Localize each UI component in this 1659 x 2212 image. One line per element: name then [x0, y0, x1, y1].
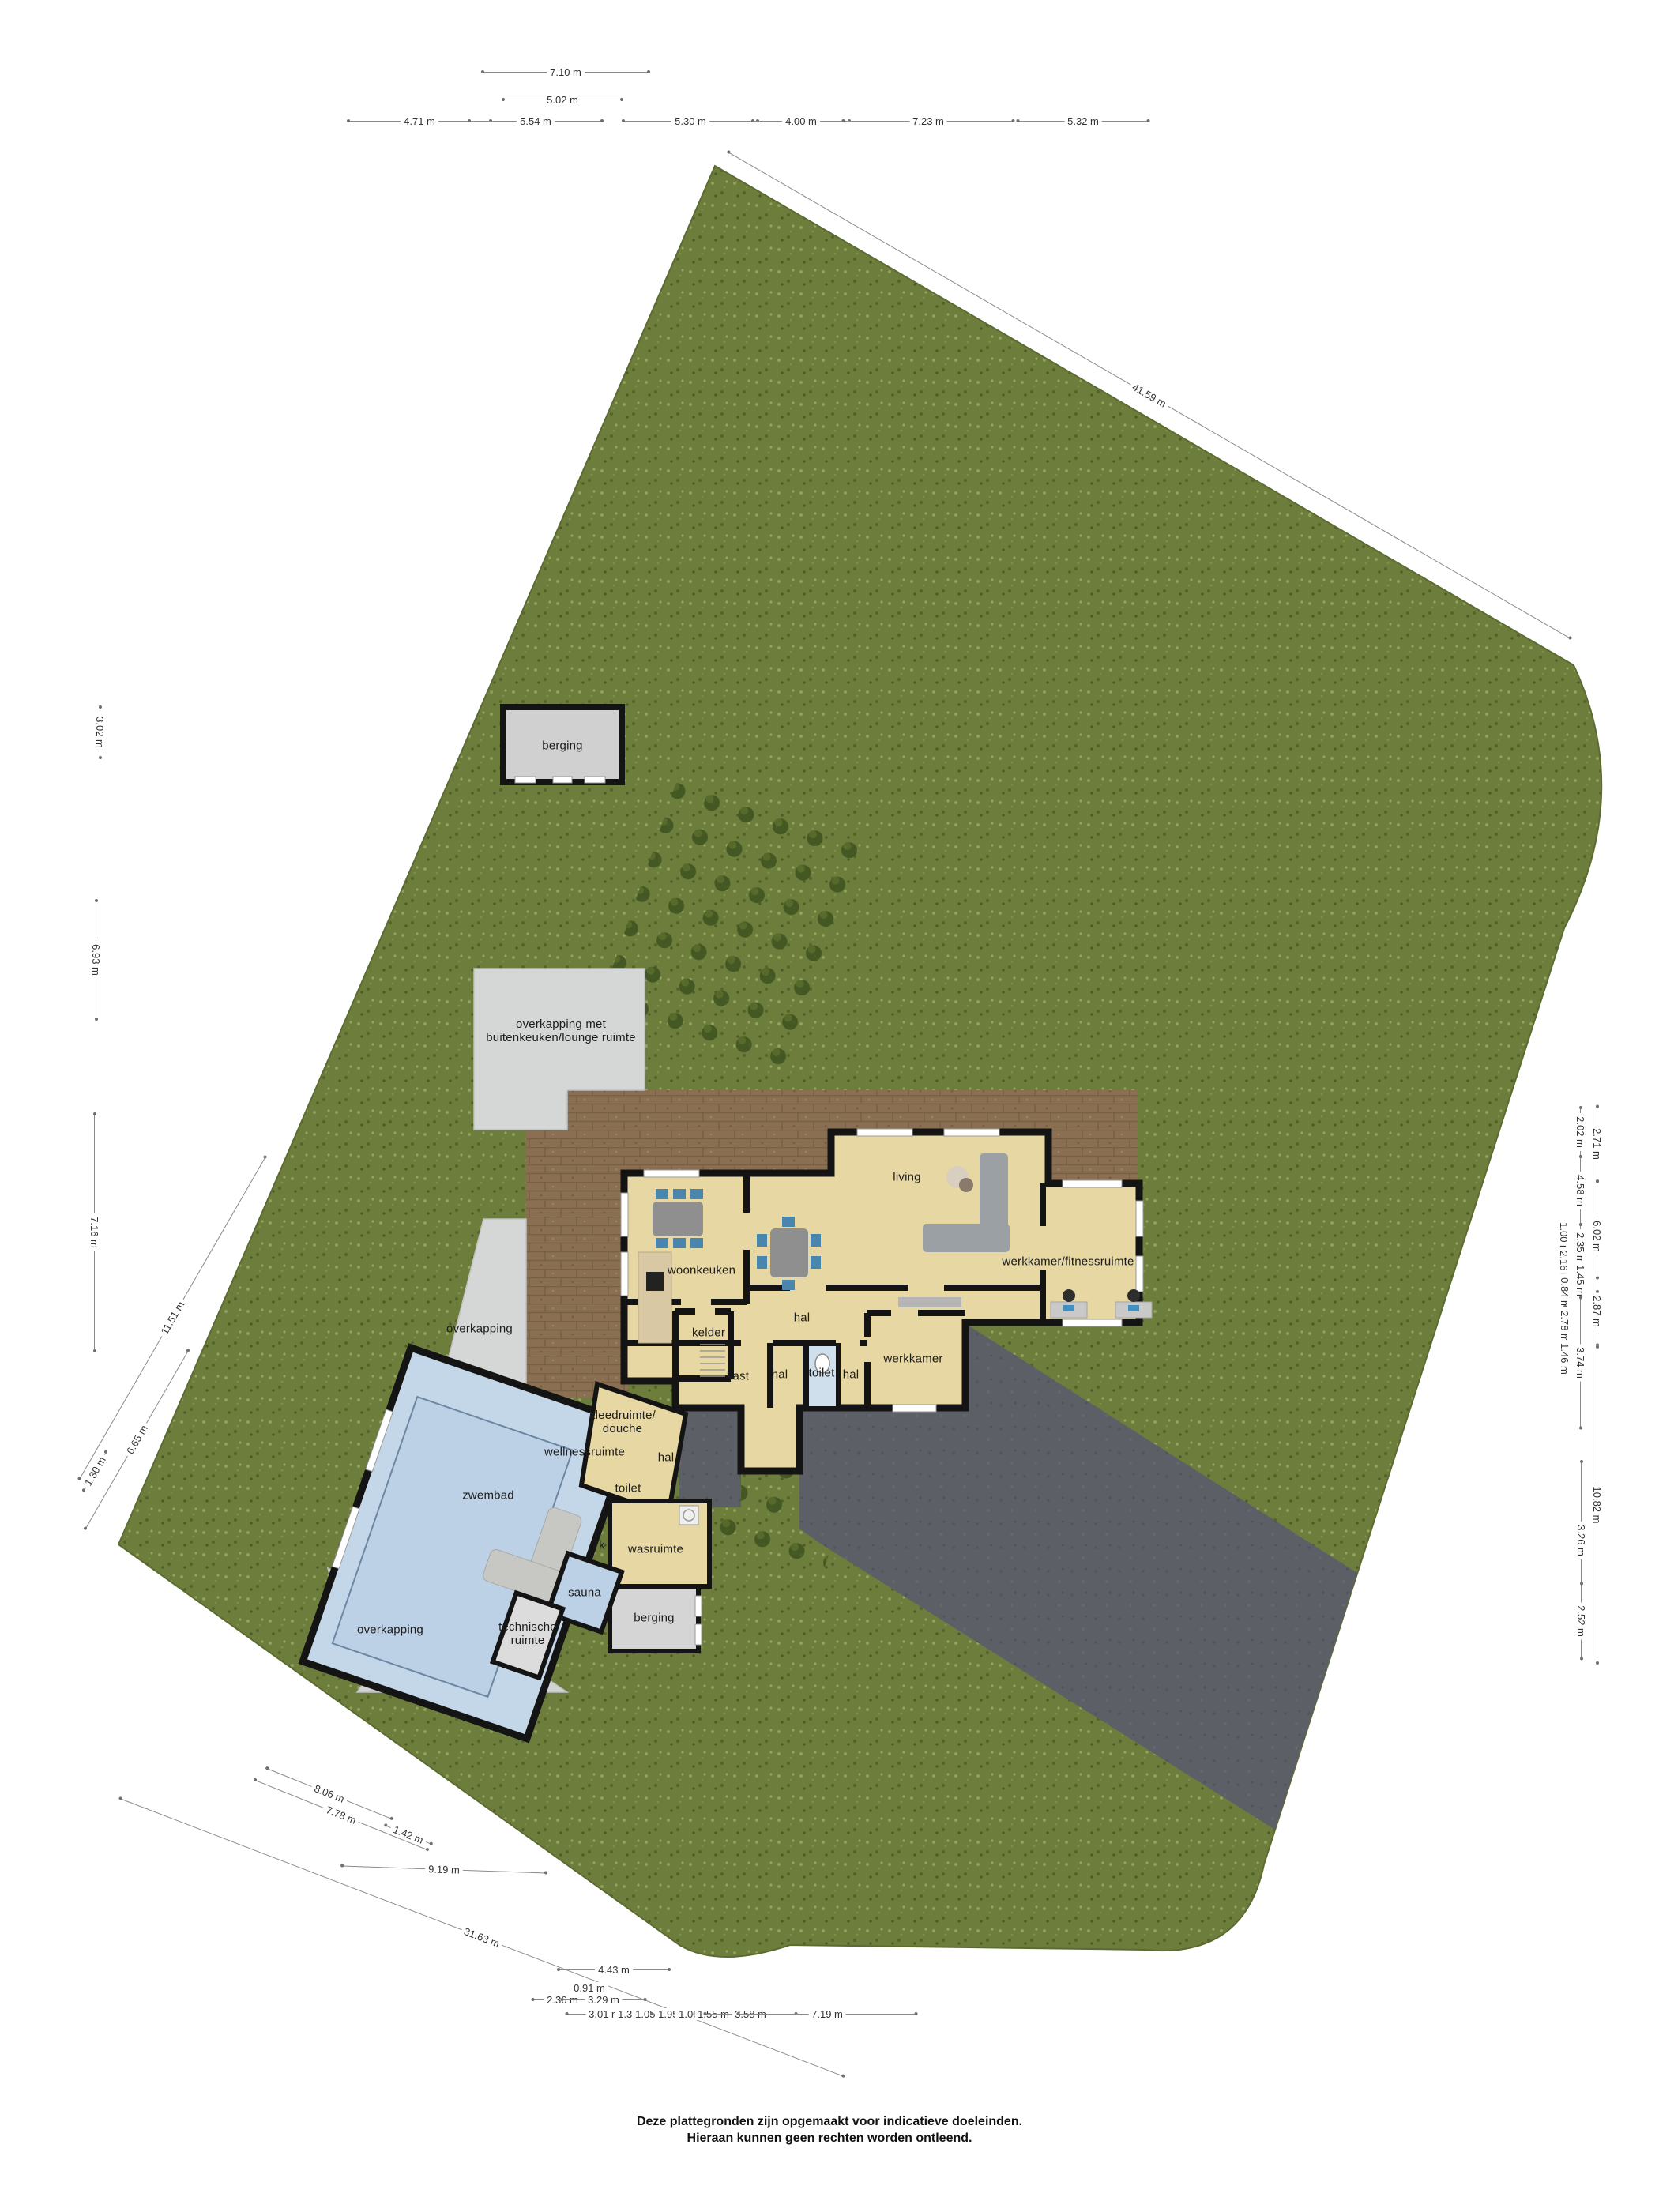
toilet-fixture	[815, 1354, 829, 1373]
floorplan-canvas: bergingoverkapping met buitenkeuken/loun…	[0, 0, 1659, 2212]
site-plan-drawing	[0, 0, 1659, 2212]
washing-machine	[679, 1506, 698, 1525]
plot-grass	[118, 166, 1601, 1957]
garden-shed	[503, 707, 622, 783]
pool-storage	[610, 1586, 698, 1651]
disclaimer-line-1: Deze plattegronden zijn opgemaakt voor i…	[0, 2114, 1659, 2131]
disclaimer-line-2: Hieraan kunnen geen rechten worden ontle…	[0, 2131, 1659, 2147]
disclaimer: Deze plattegronden zijn opgemaakt voor i…	[0, 2114, 1659, 2147]
